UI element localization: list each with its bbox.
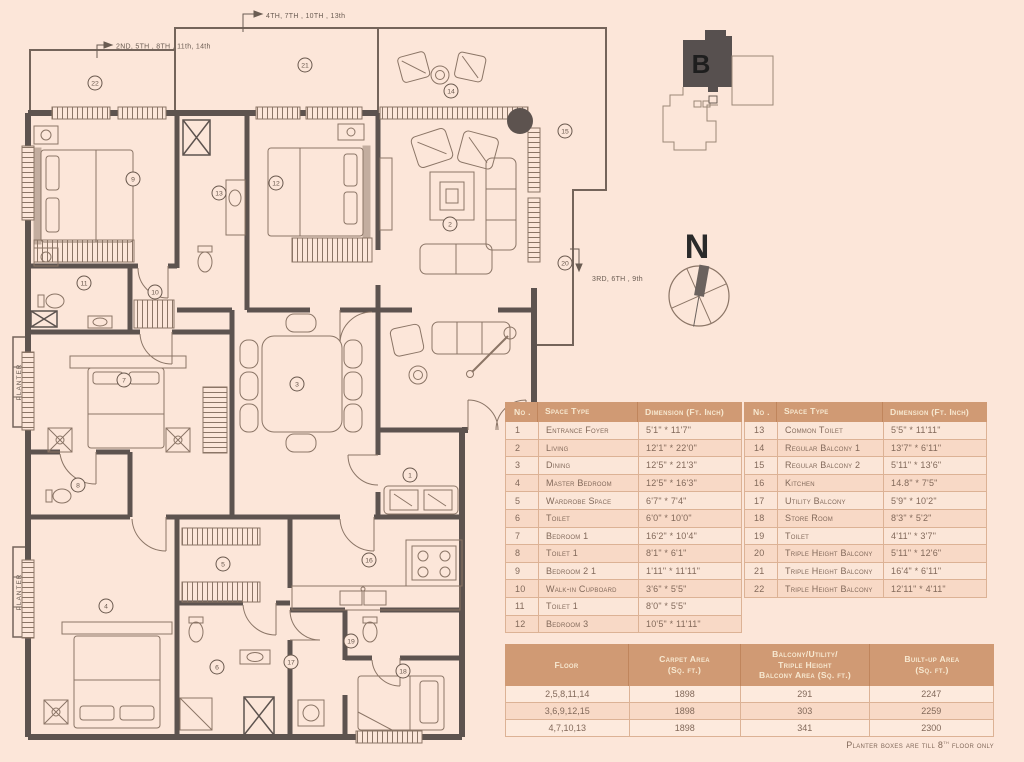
area-cell: 291 (741, 686, 869, 702)
space-cell-type: Toilet 1 (539, 545, 639, 562)
room-marker-number: 11 (80, 280, 87, 287)
room-marker-number: 4 (104, 603, 108, 610)
space-cell-dim: 14.8" * 7'5" (884, 478, 986, 488)
space-cell-dim: 5'1" * 11'7" (639, 425, 741, 435)
space-row: 18Store Room8'3" * 5'2" (744, 510, 987, 528)
space-cell-no: 6 (506, 510, 539, 527)
space-cell-dim: 12'5" * 16'3" (639, 478, 741, 488)
header-dim: Dimension (Ft. Inch) (638, 407, 742, 417)
space-cell-dim: 6'0" * 10'0" (639, 513, 741, 523)
space-row: 17Utility Balcony5'9" * 10'2" (744, 492, 987, 510)
living-furniture (380, 127, 516, 274)
space-cell-no: 10 (506, 580, 539, 597)
room-marker-number: 19 (347, 638, 355, 645)
space-cell-no: 9 (506, 563, 539, 580)
floor-label-left: 2ND, 5TH , 8TH , 11th, 14th (116, 44, 211, 51)
room-marker-number: 3 (295, 381, 299, 388)
room-marker-number: 1 (408, 472, 412, 479)
room-marker-number: 17 (287, 659, 295, 666)
space-table-header: No . Space Type Dimension (Ft. Inch) (744, 402, 987, 422)
space-row: 1Entrance Foyer5'1" * 11'7" (505, 422, 742, 440)
floor-label-top: 4TH, 7TH , 10TH , 13th (266, 13, 345, 20)
area-row: 4,7,10,1318983412300 (505, 720, 994, 737)
space-row: 3Dining12'5" * 21'3" (505, 457, 742, 475)
space-cell-dim: 10'5" * 11'11" (639, 619, 741, 629)
floorplan-page: PLANTER PLANTER (0, 0, 1024, 762)
area-cell: 2300 (870, 720, 993, 736)
area-table-header: FloorCarpet Area(Sq. ft.)Balcony/Utility… (505, 644, 994, 686)
space-cell-dim: 12'5" * 21'3" (639, 460, 741, 470)
space-row: 10Walk-in Cupboard3'6" * 5'5" (505, 580, 742, 598)
area-table: FloorCarpet Area(Sq. ft.)Balcony/Utility… (505, 644, 994, 737)
space-row: 11Toilet 18'0" * 5'5" (505, 598, 742, 616)
space-row: 12Bedroom 310'5" * 11'11" (505, 616, 742, 634)
area-cell: 2,5,8,11,14 (506, 686, 630, 702)
space-cell-no: 13 (745, 422, 778, 439)
space-cell-no: 8 (506, 545, 539, 562)
area-cell: 4,7,10,13 (506, 720, 630, 736)
space-cell-type: Utility Balcony (778, 492, 884, 509)
space-cell-type: Dining (539, 457, 639, 474)
space-cell-dim: 3'6" * 5'5" (639, 584, 741, 594)
area-cell: 1898 (630, 686, 742, 702)
bed-store-room (358, 676, 444, 730)
area-cell: 341 (741, 720, 869, 736)
space-row: 6Toilet6'0" * 10'0" (505, 510, 742, 528)
room-marker-number: 7 (122, 377, 126, 384)
wardrobes (34, 238, 372, 602)
space-cell-type: Living (539, 440, 639, 457)
foyer-bench (384, 486, 458, 514)
space-cell-no: 5 (506, 492, 539, 509)
area-cell: 1898 (630, 720, 742, 736)
space-cell-type: Master Bedroom (539, 475, 639, 492)
footnote-text: Planter boxes are till 8 (846, 740, 943, 750)
space-cell-no: 16 (745, 475, 778, 492)
space-cell-type: Kitchen (778, 475, 884, 492)
header-type: Space Type (538, 402, 638, 422)
space-cell-no: 2 (506, 440, 539, 457)
space-cell-no: 15 (745, 457, 778, 474)
space-cell-no: 21 (745, 563, 778, 580)
space-table-left: No . Space Type Dimension (Ft. Inch) 1En… (505, 402, 742, 633)
room-marker-number: 8 (76, 482, 80, 489)
space-row: 15Regular Balcony 25'11" * 13'6" (744, 457, 987, 475)
space-cell-dim: 5'9" * 10'2" (884, 496, 986, 506)
space-table-right: No . Space Type Dimension (Ft. Inch) 13C… (744, 402, 987, 598)
space-cell-type: Entrance Foyer (539, 422, 639, 439)
space-cell-dim: 5'11" * 12'6" (884, 548, 986, 558)
north-compass: N (659, 228, 738, 336)
header-dim: Dimension (Ft. Inch) (883, 407, 987, 417)
space-cell-no: 11 (506, 598, 539, 615)
space-row: 4Master Bedroom12'5" * 16'3" (505, 475, 742, 493)
space-cell-type: Store Room (778, 510, 884, 527)
area-cell: 2247 (870, 686, 993, 702)
room-marker-number: 12 (272, 180, 280, 187)
room-marker-number: 21 (301, 62, 309, 69)
space-cell-no: 14 (745, 440, 778, 457)
header-no: No . (505, 402, 538, 422)
header-no: No . (744, 402, 777, 422)
area-cell: 1898 (630, 703, 742, 719)
key-plan-tower-label: B (692, 49, 711, 79)
space-cell-no: 4 (506, 475, 539, 492)
space-cell-type: Wardrobe Space (539, 492, 639, 509)
space-cell-dim: 6'7" * 7'4" (639, 496, 741, 506)
room-marker-number: 20 (561, 260, 569, 267)
area-cell: 3,6,9,12,15 (506, 703, 630, 719)
room-marker-number: 5 (221, 561, 225, 568)
space-row: 21Triple Height Balcony16'4" * 6'11" (744, 563, 987, 581)
structural-column (507, 108, 533, 134)
key-plan: B (663, 30, 773, 150)
room-marker-number: 6 (215, 664, 219, 671)
space-table-header: No . Space Type Dimension (Ft. Inch) (505, 402, 742, 422)
space-row: 13Common Toilet5'5" * 11'11" (744, 422, 987, 440)
space-row: 19Toilet4'11" * 3'7" (744, 528, 987, 546)
space-row: 22Triple Height Balcony12'11" * 4'11" (744, 580, 987, 598)
space-cell-dim: 8'1" * 6'1" (639, 548, 741, 558)
exterior-walls (28, 113, 534, 737)
area-header-cell: Built-up Area(Sq. ft.) (870, 644, 994, 686)
area-header-cell: Floor (505, 644, 629, 686)
bed-bedroom3 (268, 124, 370, 238)
interior-walls (28, 113, 534, 737)
sitout-furniture (389, 322, 516, 384)
space-row: 14Regular Balcony 113'7" * 6'11" (744, 440, 987, 458)
space-cell-dim: 16'4" * 6'11" (884, 566, 986, 576)
space-cell-type: Walk-in Cupboard (539, 580, 639, 597)
space-cell-dim: 8'3" * 5'2" (884, 513, 986, 523)
space-cell-no: 17 (745, 492, 778, 509)
planter-footnote: Planter boxes are till 8th floor only (505, 740, 994, 750)
space-cell-dim: 4'11" * 3'7" (884, 531, 986, 541)
space-cell-type: Common Toilet (778, 422, 884, 439)
area-row: 3,6,9,12,1518983032259 (505, 703, 994, 720)
space-cell-type: Toilet (778, 528, 884, 545)
space-cell-type: Toilet 1 (539, 598, 639, 615)
bed-bedroom1 (48, 356, 190, 452)
space-cell-no: 22 (745, 580, 778, 597)
room-marker-number: 10 (151, 289, 159, 296)
space-cell-type: Triple Height Balcony (778, 563, 884, 580)
space-cell-no: 3 (506, 457, 539, 474)
space-row: 8Toilet 18'1" * 6'1" (505, 545, 742, 563)
space-row: 2Living12'1" * 22'0" (505, 440, 742, 458)
room-marker-number: 2 (448, 221, 452, 228)
room-marker-number: 9 (131, 176, 135, 183)
kitchen-counter (292, 540, 462, 610)
space-cell-type: Triple Height Balcony (778, 580, 884, 597)
space-cell-no: 18 (745, 510, 778, 527)
space-cell-dim: 12'11" * 4'11" (884, 584, 986, 594)
space-cell-dim: 5'5" * 11'11" (884, 425, 986, 435)
floor-label-right: 3RD, 6TH , 9th (592, 276, 643, 283)
space-cell-type: Toilet (539, 510, 639, 527)
space-cell-type: Bedroom 2 1 (539, 563, 639, 580)
room-marker-number: 15 (561, 128, 569, 135)
space-cell-no: 20 (745, 545, 778, 562)
area-header-cell: Carpet Area(Sq. ft.) (629, 644, 741, 686)
space-row: 16Kitchen14.8" * 7'5" (744, 475, 987, 493)
space-cell-type: Bedroom 3 (539, 616, 639, 633)
north-letter: N (685, 228, 710, 266)
space-cell-dim: 1'11" * 11'11" (639, 566, 741, 576)
room-marker-number: 13 (215, 190, 223, 197)
space-cell-no: 12 (506, 616, 539, 633)
area-cell: 2259 (870, 703, 993, 719)
space-cell-type: Regular Balcony 1 (778, 440, 884, 457)
balcony-railings (30, 28, 606, 345)
space-cell-dim: 5'11" * 13'6" (884, 460, 986, 470)
space-cell-dim: 12'1" * 22'0" (639, 443, 741, 453)
space-cell-dim: 8'0" * 5'5" (639, 601, 741, 611)
room-marker-number: 22 (91, 80, 99, 87)
space-cell-type: Triple Height Balcony (778, 545, 884, 562)
room-marker-number: 16 (365, 557, 373, 564)
footnote-text: floor only (949, 740, 994, 750)
space-row: 20Triple Height Balcony5'11" * 12'6" (744, 545, 987, 563)
area-cell: 303 (741, 703, 869, 719)
balcony-furniture (397, 51, 487, 84)
space-cell-no: 19 (745, 528, 778, 545)
space-cell-dim: 16'2" * 10'4" (639, 531, 741, 541)
space-cell-dim: 13'7" * 6'11" (884, 443, 986, 453)
space-row: 5Wardrobe Space6'7" * 7'4" (505, 492, 742, 510)
area-row: 2,5,8,11,1418982912247 (505, 686, 994, 703)
room-marker-number: 18 (399, 668, 407, 675)
header-type: Space Type (777, 402, 883, 422)
space-cell-no: 1 (506, 422, 539, 439)
bed-master-bedroom (44, 622, 172, 728)
space-row: 9Bedroom 2 11'11" * 11'11" (505, 563, 742, 581)
space-row: 7Bedroom 116'2" * 10'4" (505, 528, 742, 546)
space-cell-type: Regular Balcony 2 (778, 457, 884, 474)
room-marker-number: 14 (447, 88, 455, 95)
area-header-cell: Balcony/Utility/Triple HeightBalcony Are… (741, 644, 870, 686)
space-cell-no: 7 (506, 528, 539, 545)
space-cell-type: Bedroom 1 (539, 528, 639, 545)
